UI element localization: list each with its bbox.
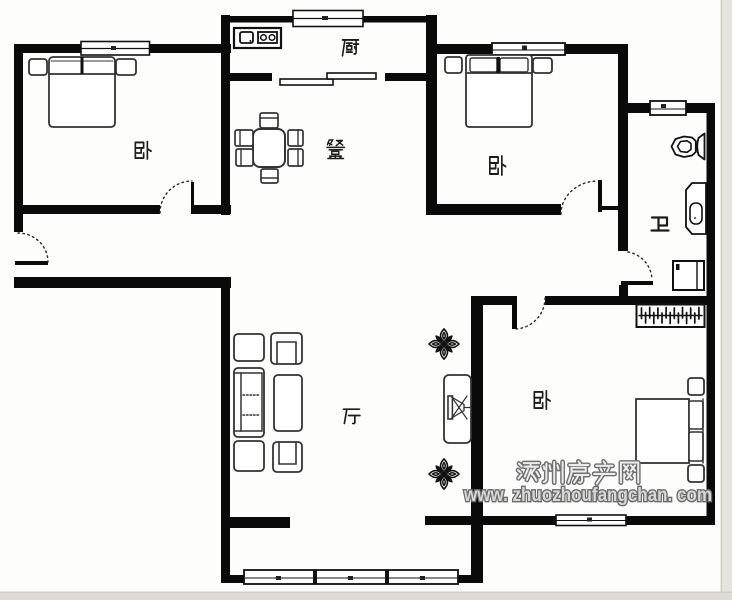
svg-text:www. zhuozhoufangchan. com: www. zhuozhoufangchan. com — [463, 485, 712, 506]
